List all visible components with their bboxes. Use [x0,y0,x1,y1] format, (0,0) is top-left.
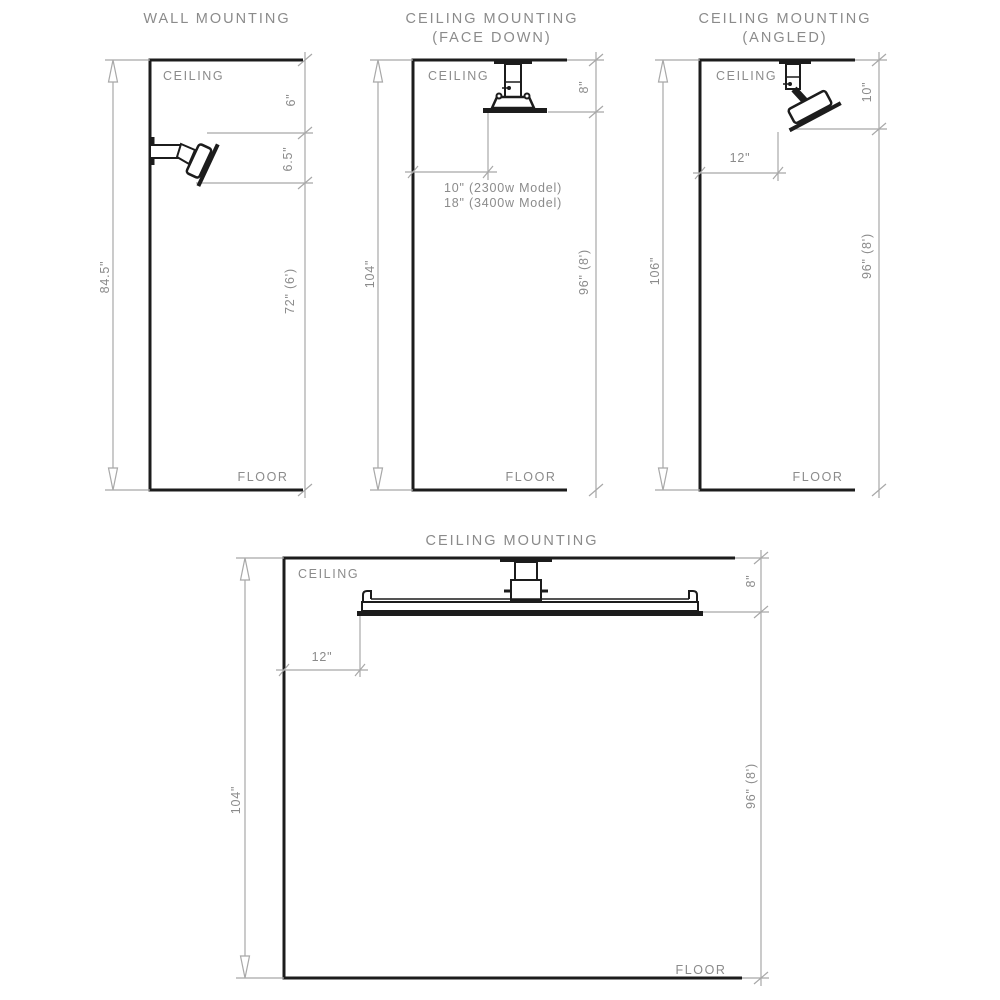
diagram-canvas: WALL MOUNTING CEILING FLOOR 84.5" 6" 6.5… [0,0,1000,1000]
dim-top-gap-label: 6" [284,94,298,107]
dimension-total-height: 106" [648,60,700,490]
dim-top-gap-label: 8" [744,575,758,588]
dim-bottom-label: 96" (8') [860,233,874,279]
mounting-diagram: WALL MOUNTING CEILING FLOOR 84.5" 6" 6.5… [0,0,1000,1000]
clearance-model-1-label: 10" (2300w Model) [444,181,562,195]
dim-total-height-label: 104" [363,260,377,289]
panel-subtitle: (FACE DOWN) [432,30,551,46]
ceiling-label: CEILING [428,69,489,83]
dimension-right-stack: 8" 96" (8') [548,52,604,498]
dim-wall-clearance-label: 12" [312,650,333,664]
wall-outline [150,60,303,490]
ceiling-label: CEILING [298,567,359,581]
wall-outline [413,60,567,490]
dimension-total-height: 84.5" [98,60,150,490]
panel-title: CEILING MOUNTING [406,11,579,27]
dimension-total-height: 104" [229,558,284,978]
heater-unit-icon [357,557,703,616]
floor-label: FLOOR [675,963,726,977]
wall-outline [284,558,742,978]
ceiling-label: CEILING [716,69,777,83]
heater-unit-icon [483,60,547,113]
dimension-total-height: 104" [363,60,413,490]
dim-bottom-label: 96" (8') [744,763,758,809]
panel-title: WALL MOUNTING [143,11,290,27]
dim-total-height-label: 106" [648,257,662,286]
heater-unit-icon [150,137,218,186]
dimension-right-stack: 8" 96" (8') [702,550,769,986]
panel-ceiling-face-down: CEILING MOUNTING (FACE DOWN) CEILING FLO… [363,11,604,498]
panel-title: CEILING MOUNTING [699,11,872,27]
dim-top-gap-label: 10" [860,82,874,103]
dimension-right-stack: 6" 6.5" 72" (6') [196,52,313,498]
panel-title: CEILING MOUNTING [426,533,599,549]
panel-ceiling-wide: CEILING MOUNTING CEILING FLOOR 104" 8" 9… [229,533,769,986]
panel-wall-mounting: WALL MOUNTING CEILING FLOOR 84.5" 6" 6.5… [98,11,313,498]
dimension-wall-clearance: 10" (2300w Model) 18" (3400w Model) [405,113,562,210]
dim-total-height-label: 104" [229,786,243,815]
dimension-wall-clearance: 12" [693,132,786,181]
ceiling-label: CEILING [163,69,224,83]
dim-bottom-label: 96" (8') [577,249,591,295]
panel-subtitle: (ANGLED) [742,30,827,46]
dim-top-gap-label: 8" [577,81,591,94]
floor-label: FLOOR [505,470,556,484]
wall-outline [700,60,855,490]
dim-bottom-label: 72" (6') [283,268,297,314]
floor-label: FLOOR [792,470,843,484]
dimension-wall-clearance: 12" [276,614,368,677]
dim-total-height-label: 84.5" [98,261,112,294]
dim-unit-label: 6.5" [281,146,295,171]
heater-unit-icon [779,60,841,130]
floor-label: FLOOR [237,470,288,484]
clearance-model-2-label: 18" (3400w Model) [444,196,562,210]
dim-wall-clearance-label: 12" [730,151,751,165]
panel-ceiling-angled: CEILING MOUNTING (ANGLED) CEILING FLOOR … [648,11,887,498]
